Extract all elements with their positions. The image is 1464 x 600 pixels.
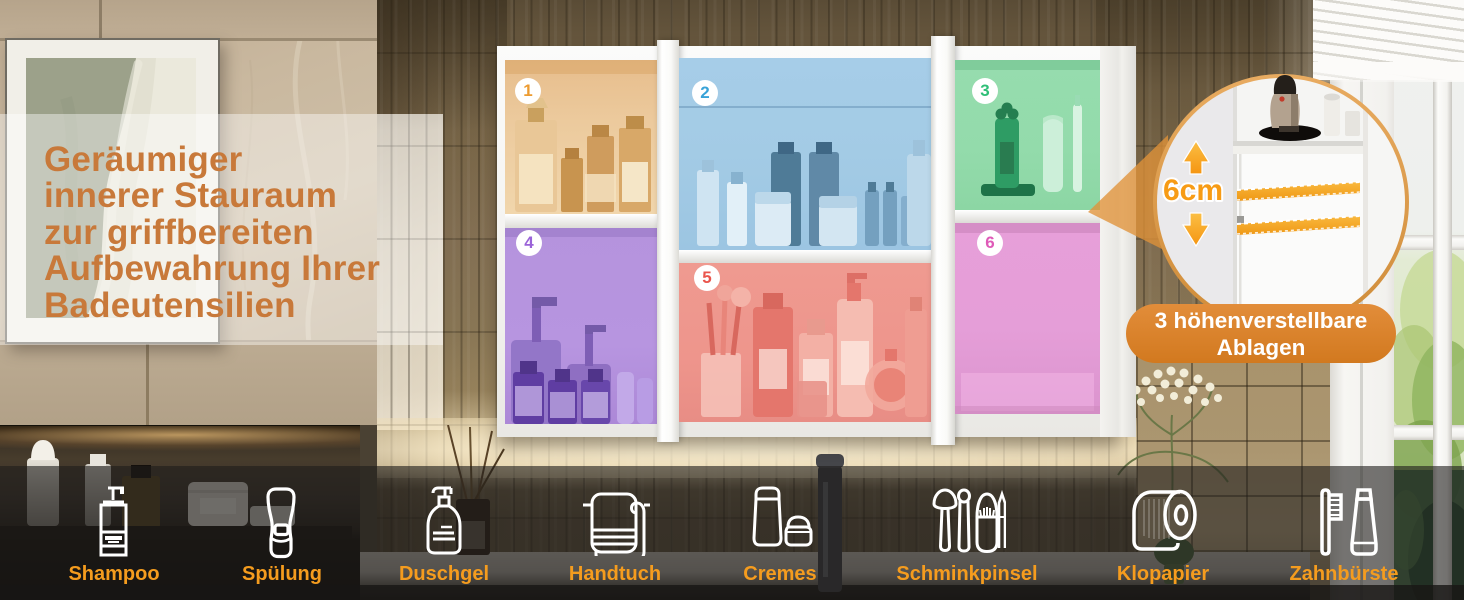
svg-text:6cm: 6cm [1163, 174, 1223, 207]
